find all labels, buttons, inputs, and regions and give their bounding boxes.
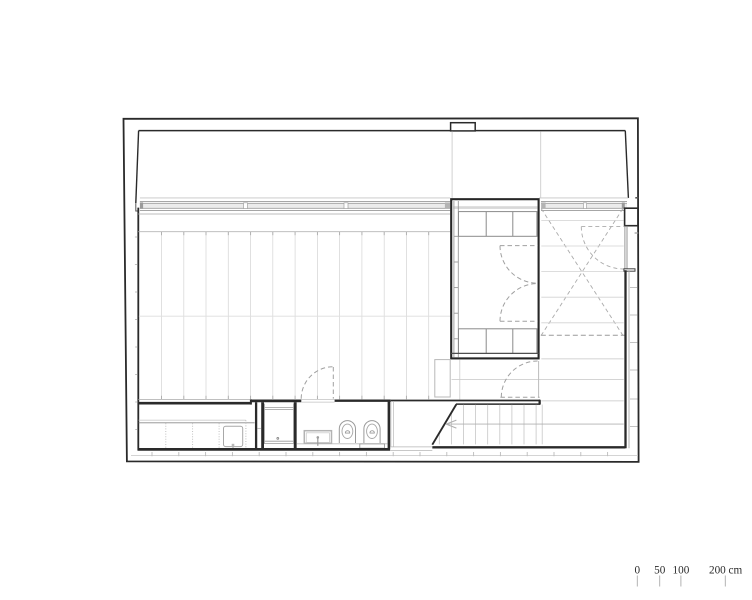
svg-text:200 cm: 200 cm bbox=[709, 565, 743, 577]
svg-text:50: 50 bbox=[654, 565, 666, 577]
svg-text:100: 100 bbox=[673, 565, 690, 577]
svg-text:0: 0 bbox=[635, 565, 641, 577]
